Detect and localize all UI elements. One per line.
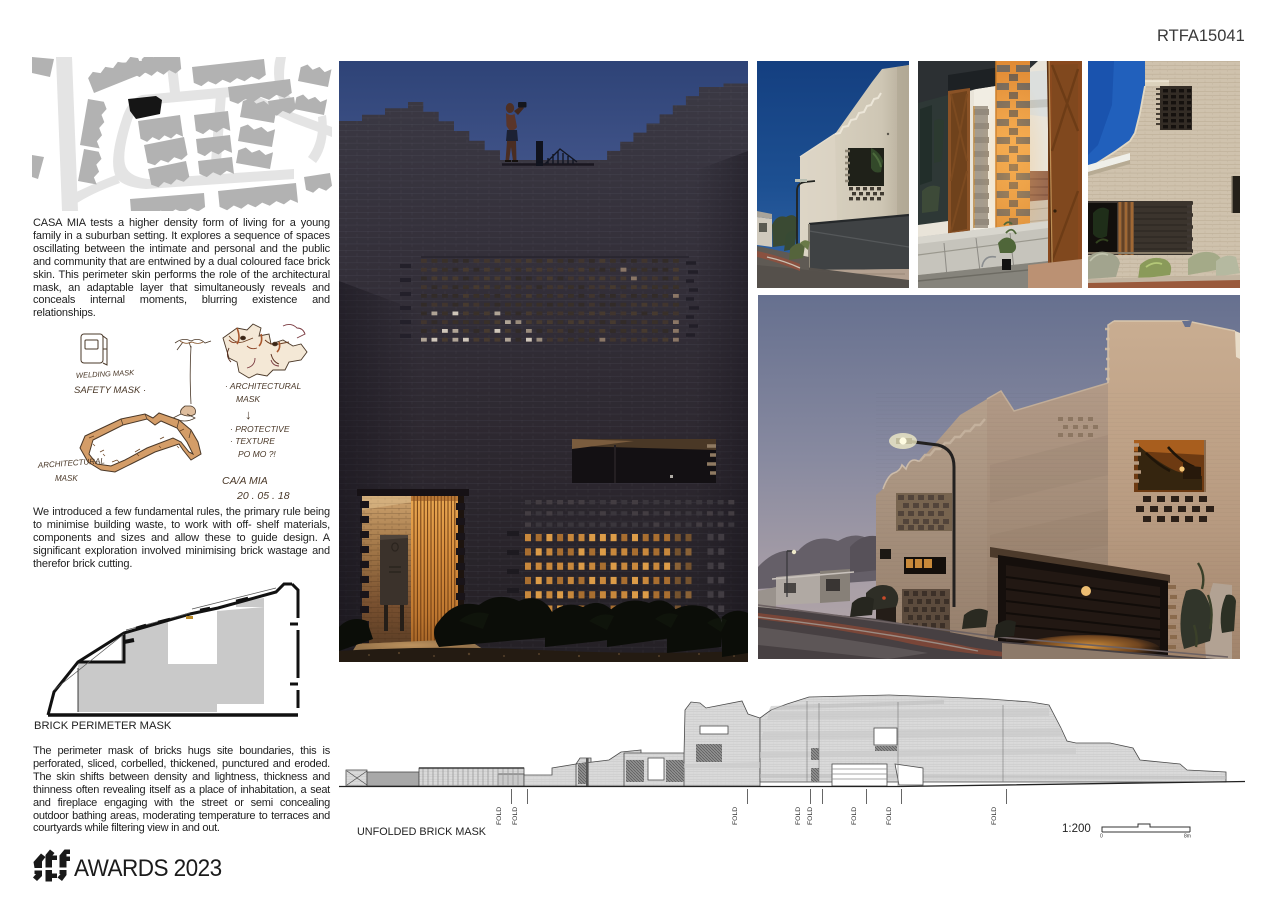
svg-text:↓: ↓: [245, 407, 252, 422]
svg-text:· ARCHITECTURAL: · ARCHITECTURAL: [225, 381, 301, 391]
svg-text:8m: 8m: [1184, 834, 1191, 839]
svg-text:· PROTECTIVE: · PROTECTIVE: [230, 424, 290, 434]
svg-text:ARCHITECTURAL: ARCHITECTURAL: [37, 456, 106, 470]
svg-text:· TEXTURE: · TEXTURE: [230, 436, 275, 446]
svg-text:MASK: MASK: [236, 394, 260, 404]
svg-text:CA/A MIA: CA/A MIA: [222, 475, 268, 487]
svg-text:0: 0: [1100, 834, 1103, 839]
svg-text:SAFETY MASK ·: SAFETY MASK ·: [74, 385, 146, 396]
svg-text:20 . 05 . 18: 20 . 05 . 18: [236, 490, 290, 502]
svg-text:MASK: MASK: [55, 474, 78, 483]
svg-text:WELDING MASK: WELDING MASK: [76, 368, 136, 380]
svg-text:PO MO ?!: PO MO ?!: [238, 449, 276, 459]
